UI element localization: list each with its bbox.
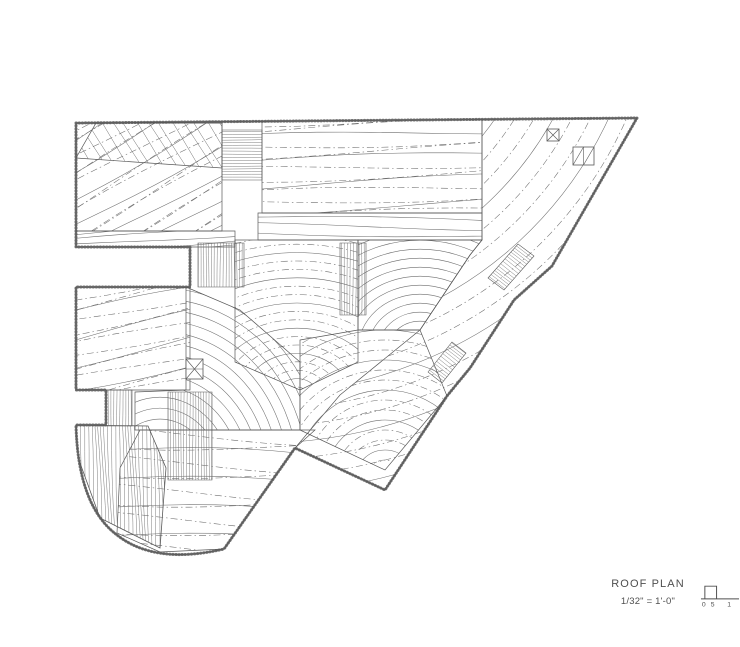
roof-plan-drawing [0, 0, 740, 647]
scale-bar-label-0: 0 [702, 602, 706, 608]
drawing-scale: 1/32" = 1'-0" [611, 596, 685, 607]
scale-bar-outline [701, 586, 739, 599]
scale-bar-label-5: 5 [711, 602, 715, 608]
drawing-title: ROOF PLAN [611, 578, 685, 590]
roof-hatch-left [186, 359, 203, 379]
roof-hatch-right [573, 147, 594, 165]
roof-hatch-small [547, 129, 559, 141]
roof-plan-document: ROOF PLAN 1/32" = 1'-0" 0 5 1 [0, 0, 740, 647]
scale-bar-label-10: 1 [727, 602, 731, 608]
scale-bar: 0 5 1 [699, 580, 740, 608]
title-block: ROOF PLAN 1/32" = 1'-0" [611, 578, 685, 607]
